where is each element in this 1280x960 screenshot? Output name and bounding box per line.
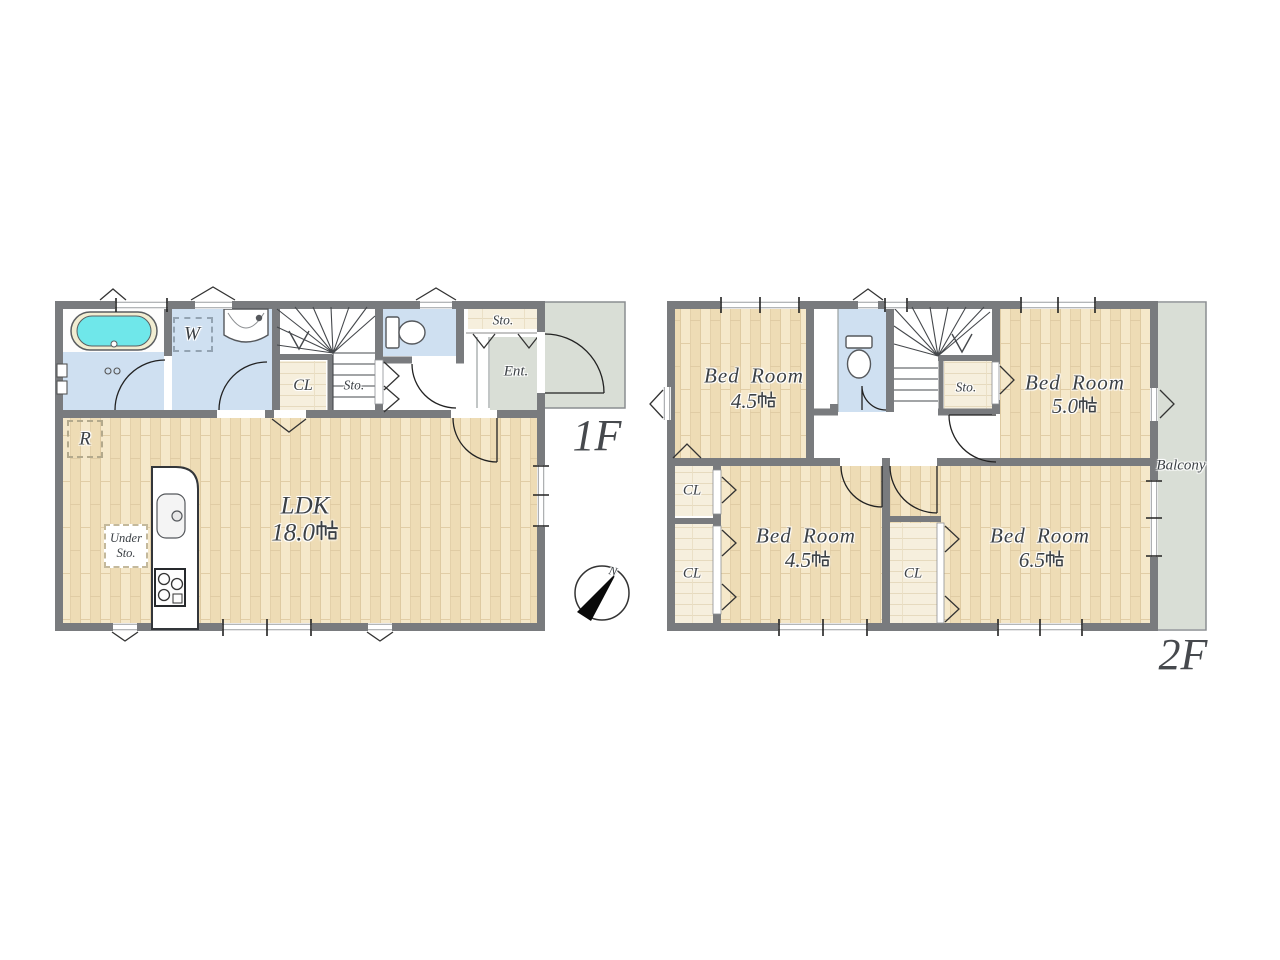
toilet-icon-2f xyxy=(846,336,872,378)
pipe-space-floor xyxy=(814,309,838,412)
bedroom-nw-name-label: Bed Room xyxy=(704,366,804,387)
under-floor-storage-box: Under Sto. xyxy=(104,524,148,568)
jou-unit-icon xyxy=(811,549,831,569)
entry-storage-label: Sto. xyxy=(493,313,514,327)
bedroom-se-name-label: Bed Room xyxy=(990,526,1090,547)
bedroom-nw-area-label: 4.5 xyxy=(731,390,777,412)
understair-storage-door-mark xyxy=(384,362,399,412)
bathtub-icon xyxy=(71,312,157,350)
compass-icon xyxy=(575,566,629,621)
storage-label-2f: Sto. xyxy=(956,380,977,394)
bedroom-ne-area-label: 5.0 xyxy=(1052,395,1098,417)
floor1-plan xyxy=(57,287,625,641)
stair-direction-arrow-2f xyxy=(952,334,972,352)
entrance-label: Ent. xyxy=(504,365,529,380)
balcony-label: Balcony xyxy=(1156,459,1205,474)
refrigerator-label: R xyxy=(79,430,91,449)
vanity-sink-icon xyxy=(224,309,268,342)
ldk-area-label: 18.0 xyxy=(271,519,339,546)
closet-mid-label: CL xyxy=(904,567,922,582)
bedroom-se-area-label: 6.5 xyxy=(1019,549,1065,571)
floor2-plan xyxy=(650,289,1206,636)
stove-icon xyxy=(155,569,185,606)
toilet-door-arc-1f xyxy=(412,364,456,408)
porch-floor xyxy=(545,302,625,408)
bedroom-ne-door-arc xyxy=(949,415,996,462)
jou-unit-icon xyxy=(1078,395,1098,415)
jou-unit-icon xyxy=(315,519,339,543)
under-floor-storage-line1: Under xyxy=(110,531,142,546)
understair-storage-label: Sto. xyxy=(344,378,365,392)
bedroom-ne-name-label: Bed Room xyxy=(1025,373,1125,394)
kitchen-counter-icon xyxy=(152,467,198,629)
bathroom-floor xyxy=(63,352,164,410)
washroom-label: W xyxy=(184,325,200,344)
jou-unit-icon xyxy=(757,390,777,410)
floor1-label: 1F xyxy=(573,414,622,458)
floorplan-graphics xyxy=(0,0,1280,960)
closet-sw-label: CL xyxy=(683,567,701,582)
under-floor-storage-line2: Sto. xyxy=(116,546,135,561)
closet-nw-label: CL xyxy=(683,484,701,499)
floorplan-canvas: W CL Sto. Sto. Ent. R Under Sto. LDK 18.… xyxy=(0,0,1280,960)
bedroom-sw-area-label: 4.5 xyxy=(785,549,831,571)
floor2-label: 2F xyxy=(1159,633,1208,677)
closet-label-1f: CL xyxy=(293,378,313,394)
jou-unit-icon xyxy=(1045,549,1065,569)
ldk-name-label: LDK xyxy=(281,494,330,519)
bedroom-sw-name-label: Bed Room xyxy=(756,526,856,547)
